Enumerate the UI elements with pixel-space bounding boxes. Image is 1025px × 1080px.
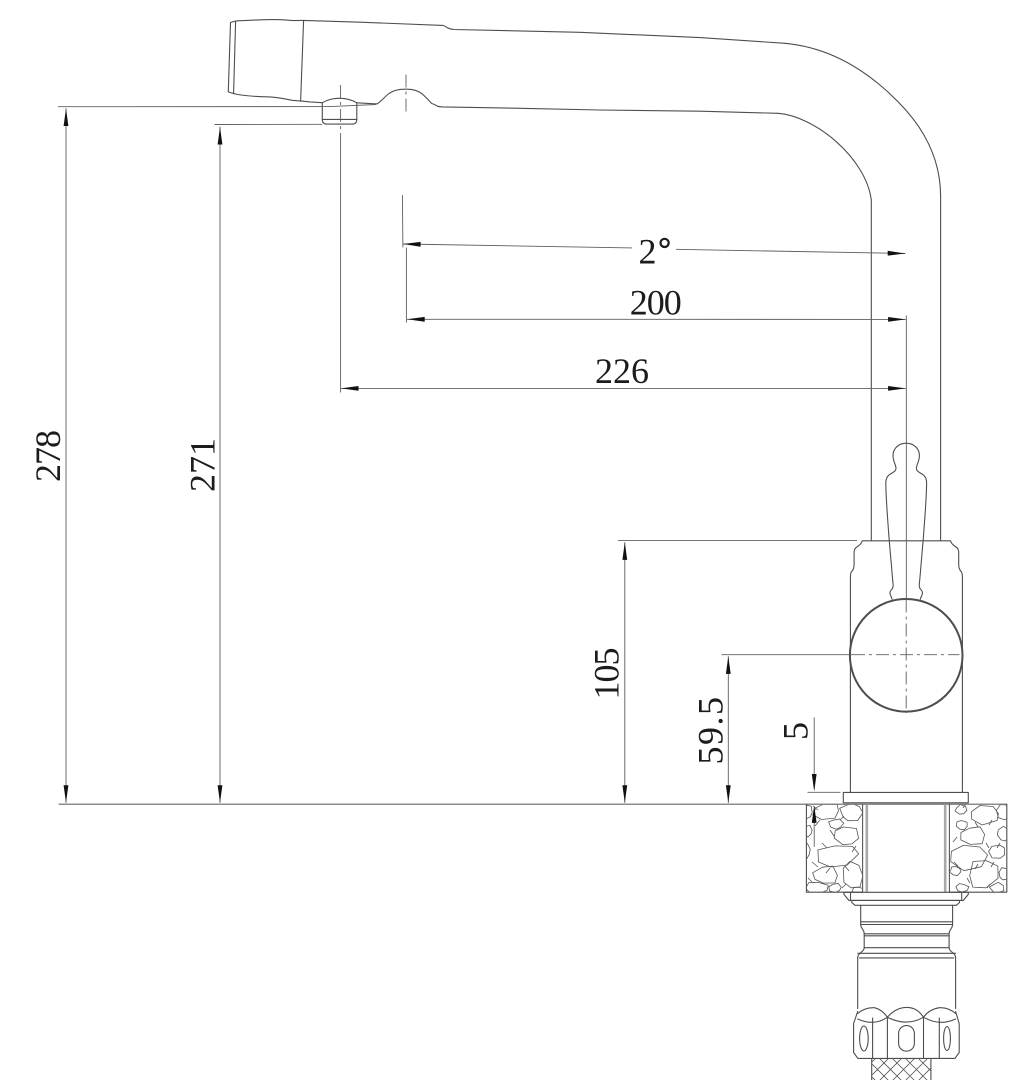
svg-text:2: 2 — [639, 232, 657, 272]
svg-text:271: 271 — [183, 438, 223, 492]
svg-text:5: 5 — [776, 722, 816, 740]
svg-text:278: 278 — [28, 431, 68, 482]
svg-text:105: 105 — [587, 649, 627, 700]
svg-text:59.5: 59.5 — [691, 696, 731, 765]
svg-text:226: 226 — [595, 351, 649, 391]
svg-text:200: 200 — [630, 282, 681, 322]
